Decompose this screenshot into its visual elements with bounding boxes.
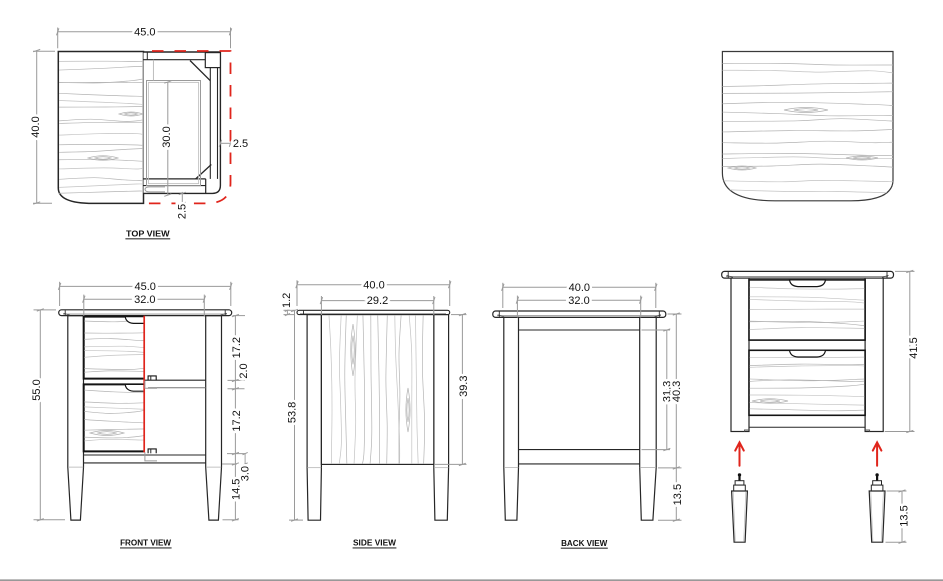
- svg-text:55.0: 55.0: [31, 379, 43, 400]
- svg-text:40.0: 40.0: [30, 116, 42, 137]
- svg-text:13.5: 13.5: [672, 484, 684, 505]
- svg-text:53.8: 53.8: [287, 402, 299, 423]
- svg-text:29.2: 29.2: [367, 295, 388, 307]
- svg-text:TOP VIEW: TOP VIEW: [126, 228, 170, 238]
- svg-text:14.5: 14.5: [231, 479, 243, 500]
- svg-text:2.5: 2.5: [233, 138, 248, 150]
- svg-text:32.0: 32.0: [134, 294, 155, 306]
- svg-text:FRONT VIEW: FRONT VIEW: [120, 538, 172, 548]
- svg-text:1.2: 1.2: [281, 293, 293, 308]
- svg-text:17.2: 17.2: [231, 337, 243, 358]
- svg-text:39.3: 39.3: [458, 375, 470, 396]
- svg-text:13.5: 13.5: [899, 505, 911, 526]
- svg-text:40.0: 40.0: [363, 279, 384, 291]
- svg-text:41.5: 41.5: [908, 337, 920, 358]
- svg-text:30.0: 30.0: [161, 126, 173, 147]
- svg-text:45.0: 45.0: [134, 26, 155, 38]
- svg-text:2.0: 2.0: [238, 363, 250, 378]
- svg-text:2.5: 2.5: [176, 204, 188, 219]
- svg-text:BACK VIEW: BACK VIEW: [561, 538, 608, 548]
- svg-text:SIDE VIEW: SIDE VIEW: [353, 538, 397, 548]
- svg-text:40.0: 40.0: [569, 282, 590, 294]
- svg-text:32.0: 32.0: [568, 295, 589, 307]
- svg-text:40.3: 40.3: [671, 381, 683, 402]
- svg-text:45.0: 45.0: [134, 281, 155, 293]
- svg-text:17.2: 17.2: [231, 410, 243, 431]
